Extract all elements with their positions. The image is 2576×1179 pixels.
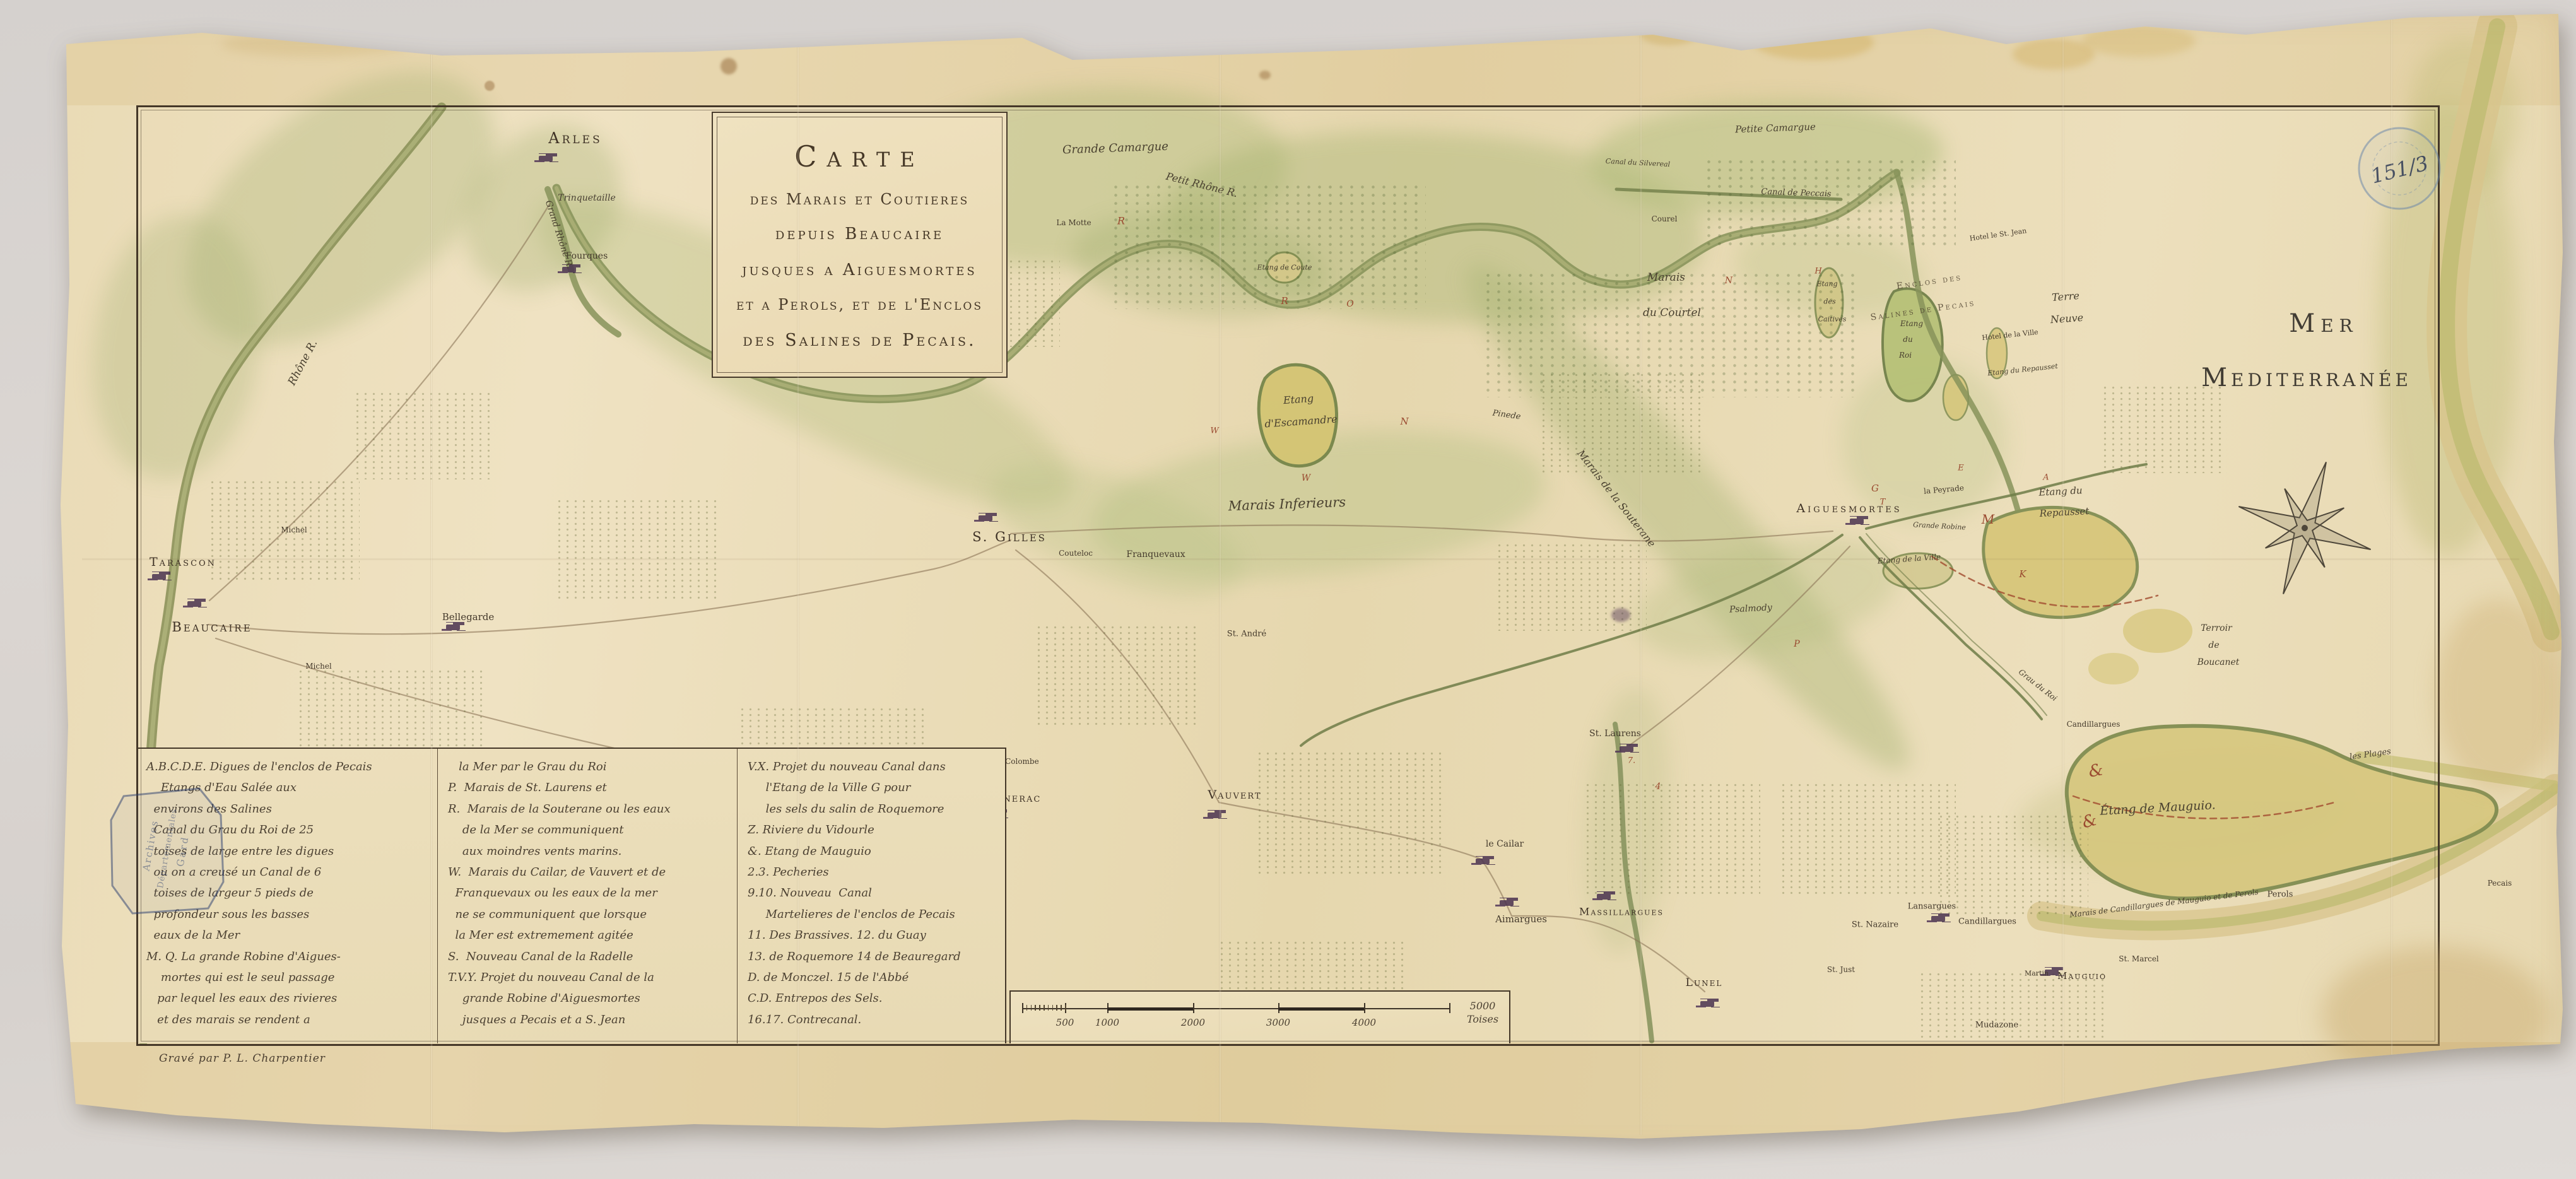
green-wash bbox=[1588, 95, 1945, 220]
map-label: Perols bbox=[2267, 890, 2293, 900]
map-label: la Peyrade bbox=[1924, 483, 1965, 496]
scale-tick-label: 4000 bbox=[1352, 1017, 1376, 1028]
map-label: La Motte bbox=[1056, 218, 1091, 227]
screenshot-root: { "palette":{"paper":"#e9dab6","ink":"#4… bbox=[0, 0, 2576, 1179]
green-wash bbox=[1085, 412, 1551, 597]
green-wash bbox=[139, 20, 542, 397]
coastline-south-beach bbox=[2042, 789, 2555, 925]
green-wash bbox=[975, 437, 1258, 623]
legend-line: 9.10. Nouveau Canal bbox=[748, 883, 1001, 903]
map-label: Candillargues bbox=[1958, 917, 2016, 927]
legend-line: et des marais se rendent a bbox=[146, 1009, 433, 1030]
legend-line: la Mer par le Grau du Roi bbox=[448, 756, 733, 777]
map-label: du Courtel bbox=[1643, 307, 1701, 319]
map-label: M bbox=[1982, 512, 1994, 527]
photo-stage: ArlesTrinquetailleFourquesGrand Rhône R.… bbox=[0, 0, 2576, 1179]
map-label: Caitives bbox=[1818, 315, 1847, 324]
map-label: Fourques bbox=[566, 251, 608, 261]
map-label: des bbox=[1823, 298, 1835, 306]
legend-line: mortes qui est le seul passage bbox=[146, 967, 433, 988]
legend-line: P. Marais de St. Laurens et bbox=[448, 777, 733, 798]
scale-minor-tick bbox=[1044, 1005, 1045, 1011]
fold-crease bbox=[1640, 18, 1642, 1135]
scale-minor-tick bbox=[1031, 1005, 1032, 1011]
legend-line: aux moindres vents marins. bbox=[448, 841, 733, 862]
map-label: les Plages bbox=[2349, 747, 2391, 762]
canal-grau-du-roi bbox=[1860, 537, 2042, 719]
map-label: Terre bbox=[2052, 290, 2080, 303]
legend-line: D. de Monczel. 15 de l'Abbé bbox=[748, 967, 1001, 988]
coastline-south-water bbox=[2042, 789, 2555, 925]
map-label: Canal de Peccais bbox=[1761, 187, 1832, 199]
town-marker bbox=[1476, 859, 1490, 864]
fold-crease bbox=[1219, 18, 1221, 1135]
engraver-signature: Gravé par P. L. Charpentier bbox=[159, 1052, 326, 1065]
town-marker bbox=[1597, 894, 1611, 900]
map-label: Marais de Candillargues de Mauguio et de… bbox=[2069, 888, 2259, 920]
scale-minor-tick bbox=[1039, 1005, 1040, 1011]
legend-line: toises de large entre les digues bbox=[146, 841, 433, 862]
map-label: Canal du Silvereal bbox=[1606, 157, 1671, 168]
scale-minor-tick bbox=[1065, 1005, 1066, 1011]
legend-col1: A.B.C.D.E. Digues de l'enclos de Pecais … bbox=[136, 749, 438, 1043]
map-label: Pecais bbox=[2488, 879, 2512, 888]
scale-tick bbox=[1449, 1003, 1450, 1013]
orchard-speckle-patch bbox=[2101, 385, 2227, 473]
map-label: Etang bbox=[1283, 392, 1314, 406]
coastline-east-water bbox=[2447, 26, 2551, 632]
map-label: 7. bbox=[1628, 756, 1635, 766]
grande-robine-canal bbox=[1866, 464, 2146, 529]
green-wash bbox=[1435, 237, 1941, 799]
map-label: Etang de Coute bbox=[1257, 264, 1312, 272]
orchard-speckle-patch bbox=[1703, 158, 1956, 246]
title-line: Carte bbox=[794, 139, 925, 173]
map-label: du bbox=[1903, 335, 1912, 344]
town-marker bbox=[539, 156, 553, 161]
map-label: W bbox=[1302, 473, 1310, 483]
horizontal-fold-crease bbox=[82, 558, 2519, 560]
map-label: de bbox=[2208, 640, 2219, 650]
etang-de-coute bbox=[1267, 252, 1302, 283]
map-label: Massillargues bbox=[1579, 906, 1664, 918]
legend-line: jusques a Pecais et a S. Jean bbox=[448, 1009, 733, 1030]
map-label: Mediterranée bbox=[2201, 363, 2412, 392]
map-label: Étang de Mauguio. bbox=[2100, 798, 2216, 818]
green-wash bbox=[1578, 685, 1678, 955]
orchard-speckle-patch bbox=[555, 498, 719, 599]
map-label: Vauvert bbox=[1208, 788, 1261, 802]
map-label: Etang du Repausset bbox=[1987, 362, 2059, 378]
map-label: W bbox=[1210, 426, 1218, 436]
map-paper: ArlesTrinquetailleFourquesGrand Rhône R.… bbox=[0, 0, 2576, 1179]
map-label: Hotel le St. Jean bbox=[1969, 226, 2027, 243]
map-label: Mauguio bbox=[2057, 970, 2107, 982]
map-label: Petite Camargue bbox=[1735, 121, 1816, 135]
legend-line: W. Marais du Cailar, de Vauvert et de bbox=[448, 862, 733, 883]
title-line: et a Perols, et de l'Enclos bbox=[736, 296, 983, 314]
legend-line: ne se communiquent que lorsque bbox=[448, 904, 733, 925]
legend-line: R. Marais de la Souterane ou les eaux bbox=[448, 799, 733, 819]
scale-tick bbox=[1193, 1003, 1194, 1013]
map-label: Boucanet bbox=[2197, 657, 2240, 667]
legend-line: toises de largeur 5 pieds de bbox=[146, 883, 433, 903]
scale-minor-tick bbox=[1052, 1005, 1054, 1011]
orchard-speckle-patch bbox=[1256, 751, 1445, 877]
paper-stain bbox=[2322, 946, 2549, 1085]
scale-tick-label: 3000 bbox=[1266, 1017, 1290, 1028]
etang-de-la-ville-pond bbox=[1883, 553, 1953, 589]
scale-end-value: 5000 bbox=[1456, 999, 1509, 1012]
map-label: Neuve bbox=[2050, 312, 2083, 326]
legend-col2: la Mer par le Grau du RoiP. Marais de St… bbox=[438, 749, 738, 1043]
paper-stain bbox=[2013, 39, 2095, 69]
map-label: St. André bbox=[1227, 630, 1266, 639]
paper-stain bbox=[1259, 71, 1271, 79]
scale-tick-label: 2000 bbox=[1181, 1017, 1205, 1028]
project-canal-ville bbox=[1932, 556, 2158, 607]
map-label: Etang de la Ville bbox=[1877, 553, 1941, 566]
paper-stain bbox=[720, 58, 737, 74]
legend-line: A.B.C.D.E. Digues de l'enclos de Pecais bbox=[146, 756, 433, 777]
canal-grau-du-roi-dike bbox=[1866, 534, 2047, 715]
map-label: Couteloc bbox=[1059, 549, 1093, 558]
map-label: H bbox=[1814, 267, 1821, 276]
legend-line: T.V.Y. Projet du nouveau Canal de la bbox=[448, 967, 733, 988]
canal-silvereal bbox=[1616, 189, 1841, 199]
legend-line: eaux de la Mer bbox=[146, 925, 433, 946]
paper-stain bbox=[2082, 25, 2196, 57]
title-line: des Salines de Pecais. bbox=[743, 331, 976, 350]
orchard-speckle-patch bbox=[1937, 814, 2088, 915]
legend-line: environs des Salines bbox=[146, 799, 433, 819]
green-wash bbox=[2016, 752, 2350, 876]
map-label: Marais bbox=[1647, 271, 1685, 284]
map-label: Tarascon bbox=[150, 555, 216, 569]
orchard-speckle-patch bbox=[1483, 271, 1861, 397]
green-wash bbox=[1730, 214, 1930, 328]
legend-line: Franquevaux ou les eaux de la mer bbox=[448, 883, 733, 903]
legend-line: 2.3. Pecheries bbox=[748, 862, 1001, 883]
etang-du-repausset bbox=[1984, 507, 2138, 617]
coastline-east-beach bbox=[2447, 26, 2551, 632]
scale-minor-tick bbox=[1056, 1005, 1057, 1011]
scale-thick-segment bbox=[1278, 1007, 1364, 1011]
green-wash bbox=[77, 204, 276, 490]
map-label: Lansargues bbox=[1908, 902, 1956, 912]
map-label: Courel bbox=[1652, 214, 1678, 223]
map-label: d'Escamandre bbox=[1264, 413, 1338, 430]
paper-stain bbox=[1754, 25, 1874, 60]
legend-line: Z. Riviere du Vidourle bbox=[748, 819, 1001, 840]
orchard-speckle-patch bbox=[1035, 625, 1199, 725]
orchard-speckle-patch bbox=[1779, 782, 1956, 896]
vidourle-river bbox=[1615, 724, 1652, 1041]
legend-line: &. Etang de Mauguio bbox=[748, 841, 1001, 862]
paper-stain bbox=[1640, 23, 1697, 45]
map-label: Pinede bbox=[1492, 408, 1522, 421]
map-label: Aimargues bbox=[1495, 913, 1547, 925]
map-label: A bbox=[2043, 473, 2049, 483]
map-label: St. Just bbox=[1827, 965, 1855, 974]
map-label: N bbox=[1725, 276, 1732, 286]
map-label: R bbox=[1281, 295, 1288, 307]
scale-baseline bbox=[1022, 1008, 1449, 1009]
map-label: Psalmody bbox=[1729, 602, 1772, 615]
map-label: Candillargues bbox=[2067, 720, 2120, 729]
town-marker bbox=[1208, 812, 1221, 818]
map-label: O bbox=[1346, 299, 1353, 309]
map-label: Beaucaire bbox=[172, 619, 252, 635]
map-label: Etang du bbox=[2038, 484, 2083, 498]
orchard-speckle-patch bbox=[1110, 183, 1426, 309]
orchard-speckle-patch bbox=[1495, 543, 1647, 631]
title-line: depuis Beaucaire bbox=[775, 225, 944, 243]
legend-line: 13. de Roquemore 14 de Beauregard bbox=[748, 946, 1001, 967]
town-marker bbox=[1500, 900, 1514, 906]
map-label: Michel bbox=[281, 525, 307, 534]
etang-de-mauguio bbox=[2067, 726, 2497, 899]
legend-line: l'Etang de la Ville G pour bbox=[748, 777, 1001, 798]
legend-line: S. Nouveau Canal de la Radelle bbox=[448, 946, 733, 967]
scale-minor-tick bbox=[1035, 1005, 1036, 1011]
map-label: Grau du Roi bbox=[2017, 667, 2059, 703]
map-label: T bbox=[1880, 498, 1886, 507]
town-marker bbox=[187, 601, 201, 607]
green-wash bbox=[1068, 202, 1330, 329]
town-marker bbox=[446, 625, 460, 630]
map-label: Petit Rhône R. bbox=[1165, 170, 1239, 200]
coastline-lagoon-tail bbox=[2360, 757, 2554, 786]
scale-minor-tick bbox=[1048, 1005, 1049, 1011]
boucanet-pond-1 bbox=[2123, 609, 2192, 653]
paper-stain bbox=[485, 81, 495, 91]
map-label: Repausset bbox=[2039, 505, 2090, 519]
town-marker bbox=[152, 574, 166, 580]
title-line: des Marais et Coutieres bbox=[750, 191, 970, 208]
canal-radelle bbox=[1301, 535, 1842, 746]
map-label: Grande Camargue bbox=[1062, 140, 1169, 157]
map-label: Rhône R. bbox=[286, 338, 321, 388]
map-label: Aiguesmortes bbox=[1796, 502, 1902, 515]
map-label: 4 bbox=[1656, 782, 1661, 792]
map-label: St. Marcel bbox=[2119, 954, 2159, 963]
fold-crease bbox=[2391, 18, 2393, 1135]
map-label: Hotel de la Ville bbox=[1982, 328, 2038, 342]
legend-line: Martelieres de l'enclos de Pecais bbox=[748, 904, 1001, 925]
town-marker bbox=[562, 267, 576, 273]
map-label: G bbox=[1871, 483, 1879, 494]
green-wash bbox=[1163, 119, 1709, 336]
map-label: St. Laurens bbox=[1589, 729, 1641, 739]
legend-line: par lequel les eaux des rivieres bbox=[146, 988, 433, 1009]
title-cartouche: Cartedes Marais et Coutieresdepuis Beauc… bbox=[712, 112, 1008, 378]
scale-bar: 5001000200030004000 5000 Toises bbox=[1009, 990, 1510, 1043]
scale-tick bbox=[1364, 1003, 1365, 1013]
project-canal-mauguio bbox=[2073, 796, 2334, 818]
map-label: & bbox=[2080, 811, 2099, 833]
orchard-speckle-patch bbox=[208, 479, 360, 580]
map-label: E bbox=[1958, 464, 1964, 473]
scale-end-label: 5000 Toises bbox=[1456, 999, 1509, 1026]
legend-line: 11. Des Brassives. 12. du Guay bbox=[748, 925, 1001, 946]
legend-line: profondeur sous les basses bbox=[146, 904, 433, 925]
scale-minor-tick bbox=[1061, 1005, 1062, 1011]
salt-pond-2 bbox=[1987, 328, 2007, 378]
town-marker bbox=[1850, 519, 1864, 524]
scale-tick-label: 500 bbox=[1056, 1017, 1074, 1028]
map-label: Etang bbox=[1900, 319, 1923, 328]
map-label: K bbox=[2019, 568, 2026, 580]
map-label: Enclos des bbox=[1896, 273, 1963, 291]
orchard-speckle-patch bbox=[1918, 971, 2107, 1041]
legend-panel: A.B.C.D.E. Digues de l'enclos de Pecais … bbox=[136, 748, 1006, 1043]
map-label: Martin bbox=[2025, 970, 2049, 978]
map-label: Grand Rhône R. bbox=[543, 199, 575, 271]
boucanet-pond-2 bbox=[2088, 653, 2139, 684]
scale-tick bbox=[1022, 1003, 1023, 1013]
etang-scamandre bbox=[1259, 365, 1336, 466]
scale-tick-label: 1000 bbox=[1095, 1017, 1119, 1028]
green-wash bbox=[2379, 101, 2517, 555]
salt-pond-1 bbox=[1943, 375, 1968, 420]
orchard-speckle-patch bbox=[353, 391, 492, 479]
town-marker bbox=[1700, 1001, 1714, 1007]
map-label: Franquevaux bbox=[1126, 549, 1185, 560]
legend-line: 16.17. Contrecanal. bbox=[748, 1009, 1001, 1030]
vieux-rhone-branch bbox=[1897, 173, 2018, 510]
green-wash bbox=[1626, 519, 1907, 679]
map-label: & bbox=[2087, 760, 2105, 782]
green-wash bbox=[1842, 360, 2006, 524]
legend-line: Etangs d'Eau Salée aux bbox=[146, 777, 433, 798]
map-label: Arles bbox=[548, 129, 602, 147]
legend-line: la Mer est extremement agitée bbox=[448, 925, 733, 946]
legend-line: M. Q. La grande Robine d'Aigues- bbox=[146, 946, 433, 967]
map-label: N bbox=[1400, 416, 1408, 427]
orchard-speckle-patch bbox=[1539, 372, 1703, 473]
town-marker bbox=[1931, 916, 1945, 922]
map-label: Bellegarde bbox=[442, 611, 495, 623]
paper-stain bbox=[221, 32, 410, 57]
map-label: Salines de Pecais bbox=[1870, 298, 1977, 322]
map-label: le Cailar bbox=[1486, 839, 1524, 849]
paper-stain bbox=[1611, 608, 1630, 622]
green-wash bbox=[433, 96, 652, 320]
town-marker bbox=[2045, 970, 2059, 975]
round-blue-stamp: 151/3 bbox=[2359, 128, 2440, 209]
map-label: P bbox=[1794, 639, 1799, 649]
map-label: R bbox=[1117, 215, 1125, 227]
paper-stain bbox=[2435, 599, 2561, 789]
title-line: jusques a Aiguesmortes bbox=[742, 261, 977, 279]
map-label: Marais de la Souterane bbox=[1575, 447, 1658, 549]
fold-crease bbox=[2062, 18, 2064, 1135]
arles-fourques-branch bbox=[548, 189, 618, 334]
map-label: St. Nazaire bbox=[1852, 920, 1898, 930]
legend-col3: V.X. Projet du nouveau Canal dans l'Etan… bbox=[738, 749, 1005, 1043]
town-marker bbox=[1620, 746, 1633, 752]
legend-line: les sels du salin de Roquemore bbox=[748, 799, 1001, 819]
margin-tint-top bbox=[0, 0, 2576, 105]
margin-tint-bottom bbox=[0, 1042, 2576, 1179]
scale-end-unit: Toises bbox=[1456, 1012, 1509, 1026]
etang-du-roi bbox=[1883, 289, 1943, 401]
green-wash bbox=[2410, 38, 2517, 189]
legend-line: ou on a creusé un Canal de 6 bbox=[146, 862, 433, 883]
legend-line: Canal du Grau du Roi de 25 bbox=[146, 819, 433, 840]
etang-des-caitives bbox=[1815, 268, 1843, 337]
round-stamp-number: 151/3 bbox=[2368, 151, 2431, 188]
map-label: Michel bbox=[305, 662, 332, 671]
map-label: Grande Robine bbox=[1913, 520, 1966, 531]
scale-thick-segment bbox=[1107, 1007, 1193, 1011]
orchard-speckle-patch bbox=[1584, 782, 1760, 896]
map-label: Roi bbox=[1899, 351, 1912, 360]
map-label: Mer bbox=[2289, 309, 2358, 338]
map-label: Marais Inferieurs bbox=[1228, 495, 1346, 513]
scale-minor-tick bbox=[1026, 1005, 1028, 1011]
map-label: Mudazone bbox=[1975, 1021, 2019, 1030]
map-label: Lunel bbox=[1686, 977, 1723, 989]
map-label: Terroir bbox=[2201, 623, 2232, 633]
title-lines: Cartedes Marais et Coutieresdepuis Beauc… bbox=[723, 123, 996, 367]
map-label: Etang bbox=[1816, 280, 1837, 288]
compass-rose-icon bbox=[2217, 440, 2392, 615]
legend-line: V.X. Projet du nouveau Canal dans bbox=[748, 756, 1001, 777]
legend-line: C.D. Entrepos des Sels. bbox=[748, 988, 1001, 1009]
legend-line: grande Robine d'Aiguesmortes bbox=[448, 988, 733, 1009]
map-label: Trinquetaille bbox=[558, 193, 615, 203]
legend-line: de la Mer se communiquent bbox=[448, 819, 733, 840]
town-marker bbox=[979, 515, 992, 521]
map-label: S. Gilles bbox=[972, 529, 1047, 544]
